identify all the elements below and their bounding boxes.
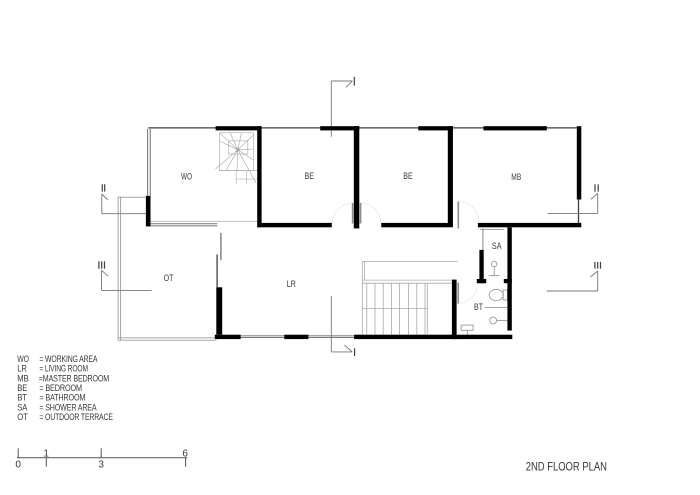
svg-text:BE: BE [305,171,315,181]
svg-text:2ND FLOOR PLAN: 2ND FLOOR PLAN [526,459,607,473]
svg-text:MB: MB [511,172,521,182]
svg-text:SA: SA [492,241,502,251]
svg-text:0: 0 [15,460,21,471]
svg-text:BE: BE [403,171,413,181]
svg-text:= OUTDOOR TERRACE: = OUTDOOR TERRACE [39,412,112,423]
svg-text:WO: WO [181,171,192,181]
svg-text:LR: LR [287,279,297,289]
svg-text:6: 6 [182,449,188,460]
svg-text:BT: BT [474,302,483,312]
svg-text:1: 1 [43,449,49,460]
svg-text:3: 3 [98,460,104,471]
svg-text:OT: OT [17,412,28,423]
svg-text:OT: OT [164,273,174,283]
